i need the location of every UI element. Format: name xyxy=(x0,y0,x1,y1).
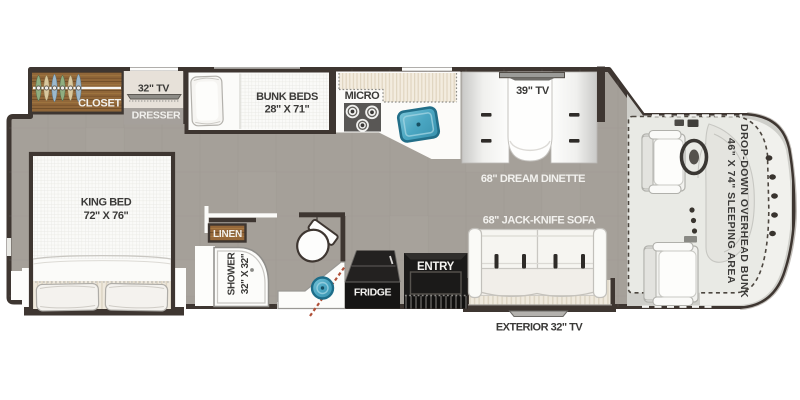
svg-text:MICRO: MICRO xyxy=(345,90,381,102)
svg-text:ENTRY: ENTRY xyxy=(417,261,455,273)
svg-text:32" TV: 32" TV xyxy=(138,82,169,94)
svg-text:FRIDGE: FRIDGE xyxy=(354,287,392,299)
svg-text:KING BED: KING BED xyxy=(81,197,132,209)
svg-text:SHOWER: SHOWER xyxy=(227,252,238,296)
svg-text:DRESSER: DRESSER xyxy=(132,110,181,122)
svg-text:28" X 71": 28" X 71" xyxy=(265,104,310,116)
svg-text:32" X 32": 32" X 32" xyxy=(240,253,251,294)
svg-text:46" X 74" SLEEPING AREA: 46" X 74" SLEEPING AREA xyxy=(725,138,737,284)
svg-text:72" X 76": 72" X 76" xyxy=(84,210,129,222)
svg-text:BUNK BEDS: BUNK BEDS xyxy=(256,91,318,103)
svg-text:68" JACK-KNIFE SOFA: 68" JACK-KNIFE SOFA xyxy=(483,215,596,227)
svg-text:68" DREAM DINETTE: 68" DREAM DINETTE xyxy=(481,173,585,185)
svg-text:DROP-DOWN OVERHEAD BUNK: DROP-DOWN OVERHEAD BUNK xyxy=(738,124,750,298)
svg-text:LINEN: LINEN xyxy=(213,229,242,240)
svg-text:39" TV: 39" TV xyxy=(516,85,550,97)
svg-text:EXTERIOR 32" TV: EXTERIOR 32" TV xyxy=(496,321,584,333)
svg-text:CLOSET: CLOSET xyxy=(78,98,121,110)
